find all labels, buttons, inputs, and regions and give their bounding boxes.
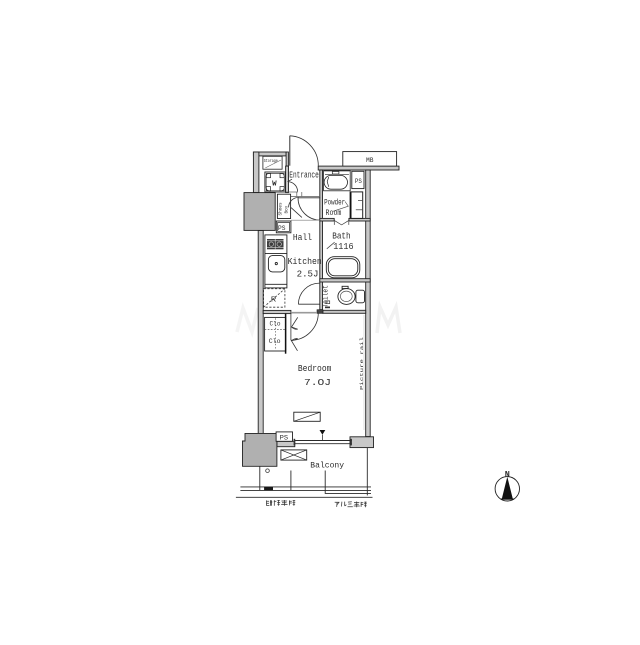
svg-text:Room: Room: [326, 209, 342, 218]
svg-text:R: R: [271, 297, 277, 305]
svg-text:Bath: Bath: [332, 232, 351, 242]
svg-text:7.OJ: 7.OJ: [304, 377, 331, 388]
svg-text:Kitchen: Kitchen: [288, 256, 322, 267]
svg-text:1116: 1116: [333, 241, 354, 252]
svg-text:MB: MB: [366, 157, 374, 164]
svg-text:Clo: Clo: [269, 338, 281, 345]
svg-text:Entrance: Entrance: [289, 170, 319, 180]
svg-text:Shoes: Shoes: [279, 202, 284, 216]
svg-text:Storage: Storage: [264, 160, 278, 164]
svg-text:2.5J: 2.5J: [297, 268, 319, 279]
svg-text:PS: PS: [355, 178, 362, 185]
svg-text:Bedroom: Bedroom: [298, 363, 332, 374]
svg-text:Hall: Hall: [293, 233, 312, 243]
svg-text:Powder: Powder: [324, 198, 345, 207]
svg-text:PS: PS: [278, 225, 286, 232]
svg-text:N: N: [505, 469, 510, 479]
svg-text:Toilet: Toilet: [323, 285, 331, 308]
svg-text:PS: PS: [280, 435, 289, 442]
svg-text:Clo: Clo: [270, 321, 281, 328]
svg-text:Balcony: Balcony: [310, 460, 344, 470]
